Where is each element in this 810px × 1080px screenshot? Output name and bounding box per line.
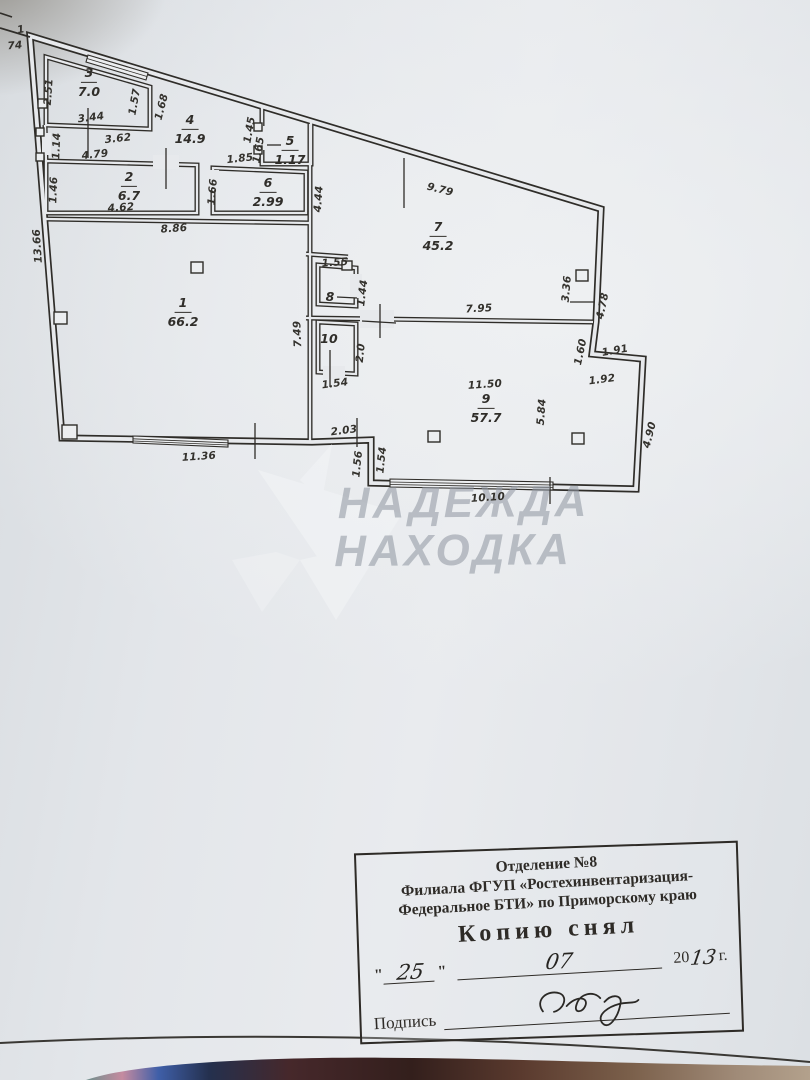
walls-dark [30, 36, 643, 489]
table-fabric-strip [86, 1058, 810, 1080]
watermark-line2: НАХОДКА [334, 526, 590, 576]
walls-light [30, 36, 643, 489]
stamp-signature-row: Подпись [372, 976, 730, 1033]
stamp-day-handwritten: 25 [383, 961, 437, 984]
stamp-month-handwritten: 07 [544, 951, 574, 972]
signature-line [443, 976, 730, 1029]
stamp-year-prefix: 20 [673, 949, 690, 968]
stamp-year-handwritten: 13 [689, 947, 717, 967]
quote-mark-open: " [374, 966, 384, 984]
stamp-month-line: 07 [456, 946, 662, 980]
quote-mark-close: " [437, 963, 447, 981]
bti-copy-stamp: Отделение №8 Филиала ФГУП «Ростехинвента… [354, 841, 744, 1045]
signature-scribble [522, 979, 655, 1038]
stamp-year-suffix: г. [718, 946, 728, 964]
watermark-text: НАДЕЖДА НАХОДКА [338, 478, 590, 576]
signature-label: Подпись [373, 1010, 436, 1034]
photo-of-floor-plan-document: НАДЕЖДА НАХОДКА 1742.513.441.571.683.624… [0, 0, 810, 1080]
corner-wall-fragment [0, 13, 30, 37]
watermark-line1: НАДЕЖДА [338, 477, 590, 528]
